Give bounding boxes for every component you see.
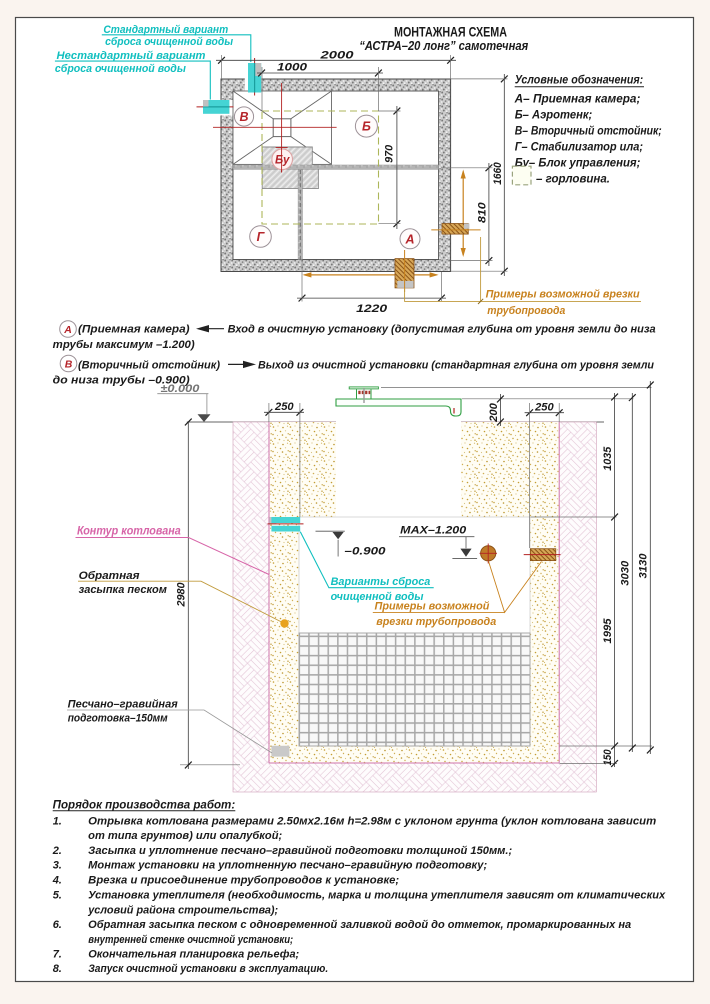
svg-text:Бу: Бу	[275, 154, 290, 166]
svg-text:1.: 1.	[53, 816, 62, 828]
svg-text:засыпка песком: засыпка песком	[79, 584, 167, 596]
svg-text:Обратная: Обратная	[79, 570, 141, 582]
svg-text:от типа грунтов) или опалубкой: от типа грунтов) или опалубкой;	[88, 830, 282, 842]
svg-text:Примеры возможной: Примеры возможной	[375, 601, 490, 613]
svg-text:1220: 1220	[356, 303, 388, 315]
svg-text:2980: 2980	[176, 582, 188, 608]
svg-text:Варианты сброса: Варианты сброса	[331, 576, 431, 588]
svg-text:250: 250	[274, 401, 295, 413]
svg-text:1035: 1035	[602, 446, 614, 471]
svg-text:150: 150	[602, 749, 614, 766]
svg-text:Песчано–гравийная: Песчано–гравийная	[68, 699, 179, 711]
svg-text:врезки трубопровода: врезки трубопровода	[376, 616, 496, 628]
svg-text:3030: 3030	[620, 560, 632, 586]
svg-text:7.: 7.	[53, 949, 62, 961]
svg-text:Г: Г	[257, 230, 266, 244]
svg-text:трубы максимум –1.200): трубы максимум –1.200)	[53, 339, 195, 351]
svg-text:1995: 1995	[602, 618, 614, 644]
svg-text:Условные обозначения:: Условные обозначения:	[515, 75, 644, 87]
svg-text:Контур котлована: Контур котлована	[77, 526, 181, 538]
svg-text:А– Приемная камера;: А– Приемная камера;	[514, 94, 641, 106]
svg-text:Вход в очистную установку (доп: Вход в очистную установку (допустимая гл…	[228, 324, 656, 336]
svg-text:2000: 2000	[319, 49, 355, 61]
svg-text:Порядок производства работ:: Порядок производства работ:	[53, 800, 236, 812]
svg-text:250: 250	[534, 401, 555, 413]
svg-text:сброса очищенной воды: сброса очищенной воды	[105, 36, 234, 48]
svg-text:Установка утеплителя (необходи: Установка утеплителя (необходимость, мар…	[88, 890, 666, 902]
svg-text:810: 810	[476, 201, 488, 223]
svg-text:1000: 1000	[277, 62, 308, 74]
svg-text:сброса очищенной воды: сброса очищенной воды	[55, 63, 187, 75]
svg-text:“АСТРА–20 лонг” самотечная: “АСТРА–20 лонг” самотечная	[359, 39, 529, 53]
svg-text:В: В	[239, 110, 248, 124]
svg-text:трубопровода: трубопровода	[487, 305, 565, 317]
svg-text:МОНТАЖНАЯ СХЕМА: МОНТАЖНАЯ СХЕМА	[394, 25, 507, 40]
svg-text:А: А	[404, 232, 414, 246]
svg-text:4.: 4.	[52, 875, 62, 887]
svg-text:8.: 8.	[53, 963, 62, 975]
svg-text:условий района строительства);: условий района строительства);	[87, 905, 278, 917]
svg-text:970: 970	[383, 144, 395, 163]
svg-text:внутренней стенке очистной уст: внутренней стенке очистной установки;	[88, 934, 293, 946]
svg-text:±0.000: ±0.000	[160, 383, 200, 395]
svg-text:Врезка и присоединение трубопр: Врезка и присоединение трубопроводов к у…	[88, 875, 399, 887]
svg-text:Бу– Блок управления;: Бу– Блок управления;	[515, 158, 641, 170]
svg-text:(Приемная камера): (Приемная камера)	[78, 324, 190, 336]
svg-text:3.: 3.	[53, 860, 62, 872]
svg-text:200: 200	[488, 402, 500, 423]
svg-text:Отрывка котлована размерами 2.: Отрывка котлована размерами 2.50мх2.16м …	[88, 816, 656, 828]
svg-text:Засыпка и уплотнение песчано–г: Засыпка и уплотнение песчано–гравийной п…	[88, 845, 512, 857]
svg-text:подготовка–150мм: подготовка–150мм	[68, 712, 168, 724]
svg-text:2.: 2.	[52, 845, 62, 857]
svg-text:– горловина.: – горловина.	[536, 174, 610, 186]
svg-text:Монтаж установки на уплотненну: Монтаж установки на уплотненную песчано–…	[88, 860, 487, 872]
svg-text:Обратная засыпка песком с одно: Обратная засыпка песком с одновременной …	[88, 919, 631, 931]
svg-text:Выход из очистной установки (с: Выход из очистной установки (стандартная…	[258, 359, 654, 371]
svg-text:3130: 3130	[638, 553, 650, 579]
svg-text:Нестандартный вариант: Нестандартный вариант	[57, 50, 206, 62]
svg-text:Б– Аэротенк;: Б– Аэротенк;	[515, 110, 593, 122]
svg-text:Г– Стабилизатор ила;: Г– Стабилизатор ила;	[515, 142, 644, 154]
svg-text:А: А	[63, 324, 72, 336]
svg-text:6.: 6.	[53, 919, 62, 931]
svg-text:В– Вторичный отстойник;: В– Вторичный отстойник;	[515, 126, 662, 138]
svg-text:–0.900: –0.900	[345, 546, 387, 558]
svg-text:МАХ–1.200: МАХ–1.200	[400, 525, 467, 537]
svg-text:Окончательная планировка релье: Окончательная планировка рельефа;	[88, 949, 299, 961]
svg-text:5.: 5.	[53, 890, 62, 902]
svg-text:1660: 1660	[492, 162, 504, 185]
svg-text:(Вторичный отстойник): (Вторичный отстойник)	[78, 359, 220, 371]
svg-text:Б: Б	[362, 120, 371, 134]
svg-text:В: В	[65, 358, 73, 370]
svg-text:Стандартный вариант: Стандартный вариант	[103, 24, 228, 36]
svg-text:Запуск очистной установки в эк: Запуск очистной установки в эксплуатацию…	[88, 963, 328, 975]
svg-text:Примеры возможной врезки: Примеры возможной врезки	[486, 289, 640, 301]
